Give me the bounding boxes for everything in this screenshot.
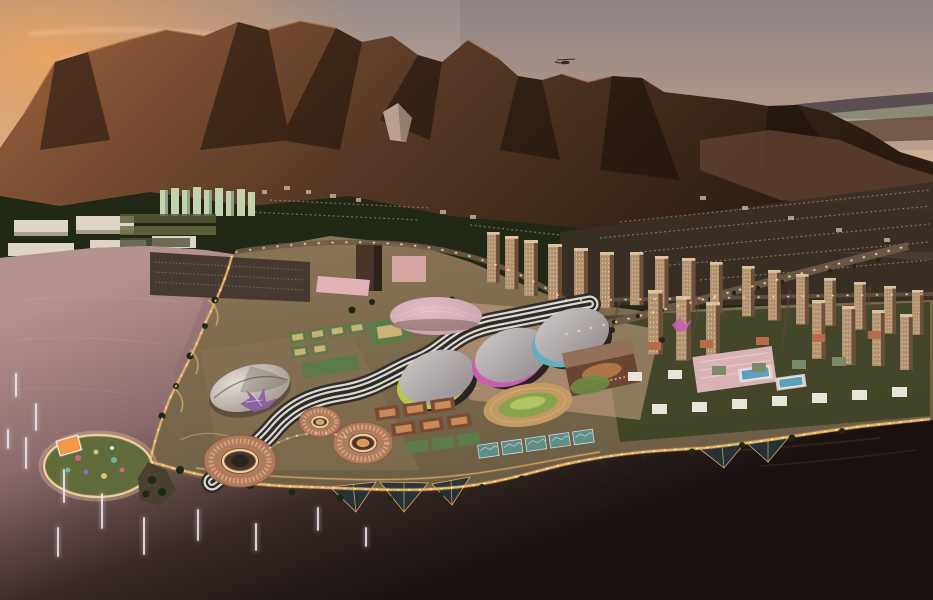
green-tower-cluster bbox=[160, 187, 255, 216]
white-dome-arena bbox=[390, 297, 482, 335]
pink-hotel bbox=[392, 256, 426, 282]
scene-canvas bbox=[0, 0, 933, 600]
aerial-olympic-park-photo bbox=[0, 0, 933, 600]
circular-stadium-1 bbox=[204, 435, 276, 487]
circular-stadium-3 bbox=[333, 422, 393, 464]
circular-stadium-2 bbox=[299, 407, 341, 437]
